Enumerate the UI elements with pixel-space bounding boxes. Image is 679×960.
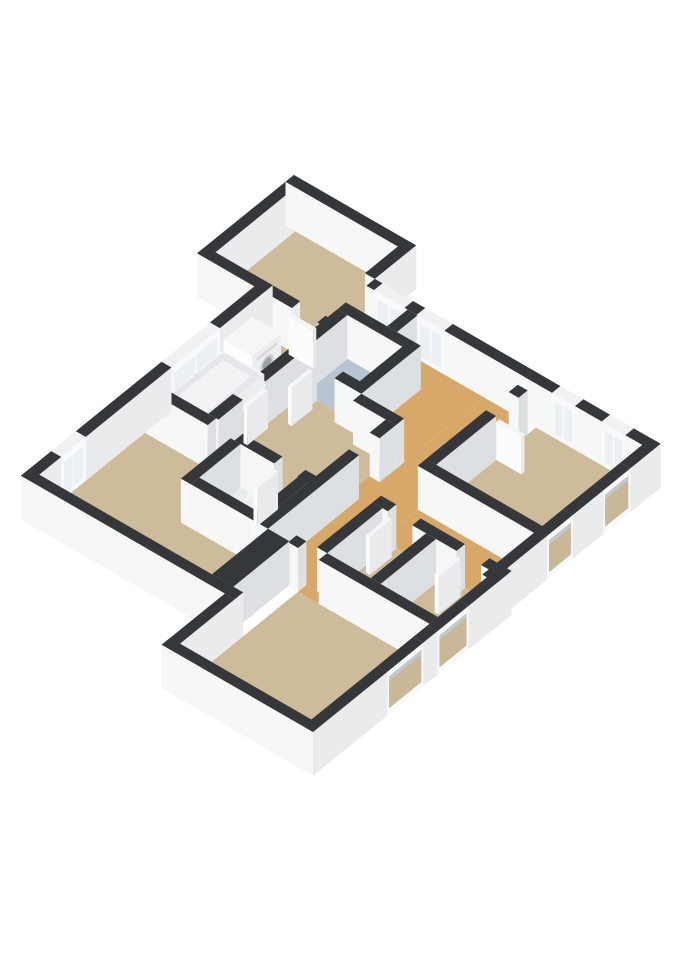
face-south xyxy=(181,479,191,528)
face-south xyxy=(244,405,248,445)
mullion xyxy=(73,454,75,487)
face-south xyxy=(435,575,439,615)
wall-bottom-north-a xyxy=(288,535,306,591)
face-south xyxy=(370,433,380,483)
face-south xyxy=(288,386,292,426)
face-east xyxy=(313,328,316,369)
face-east xyxy=(521,434,524,475)
floorplan-3d-render xyxy=(0,0,679,960)
face-south xyxy=(366,535,370,575)
face-east xyxy=(235,592,243,643)
floorplan-page xyxy=(0,0,679,960)
mullion xyxy=(430,330,432,363)
face-east xyxy=(298,541,306,592)
face-south xyxy=(254,486,258,526)
face-south xyxy=(303,726,313,776)
mullion xyxy=(563,406,565,439)
mullion xyxy=(613,435,615,468)
face-south xyxy=(288,542,298,592)
face-east xyxy=(396,419,404,470)
